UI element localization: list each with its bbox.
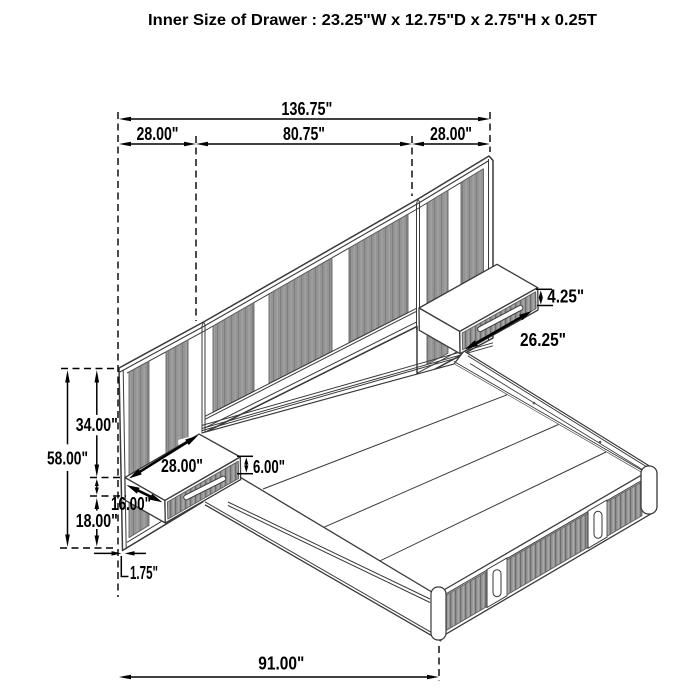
svg-text:80.75": 80.75" (283, 124, 325, 144)
svg-text:91.00": 91.00" (258, 654, 304, 674)
svg-text:28.00": 28.00" (137, 124, 179, 144)
svg-text:6.00": 6.00" (253, 457, 285, 477)
svg-text:18.00": 18.00" (76, 511, 118, 531)
svg-text:1.75": 1.75" (130, 563, 158, 583)
svg-text:34.00": 34.00" (76, 415, 118, 435)
svg-text:28.00": 28.00" (161, 456, 203, 476)
svg-text:136.75": 136.75" (281, 99, 332, 119)
svg-text:28.00": 28.00" (430, 124, 472, 144)
svg-text:4.25": 4.25" (547, 287, 584, 307)
svg-text:Inner Size of Drawer : 23.25"W: Inner Size of Drawer : 23.25"W x 12.75"D… (148, 12, 598, 29)
svg-text:58.00": 58.00" (47, 449, 88, 469)
svg-text:26.25": 26.25" (520, 330, 566, 350)
